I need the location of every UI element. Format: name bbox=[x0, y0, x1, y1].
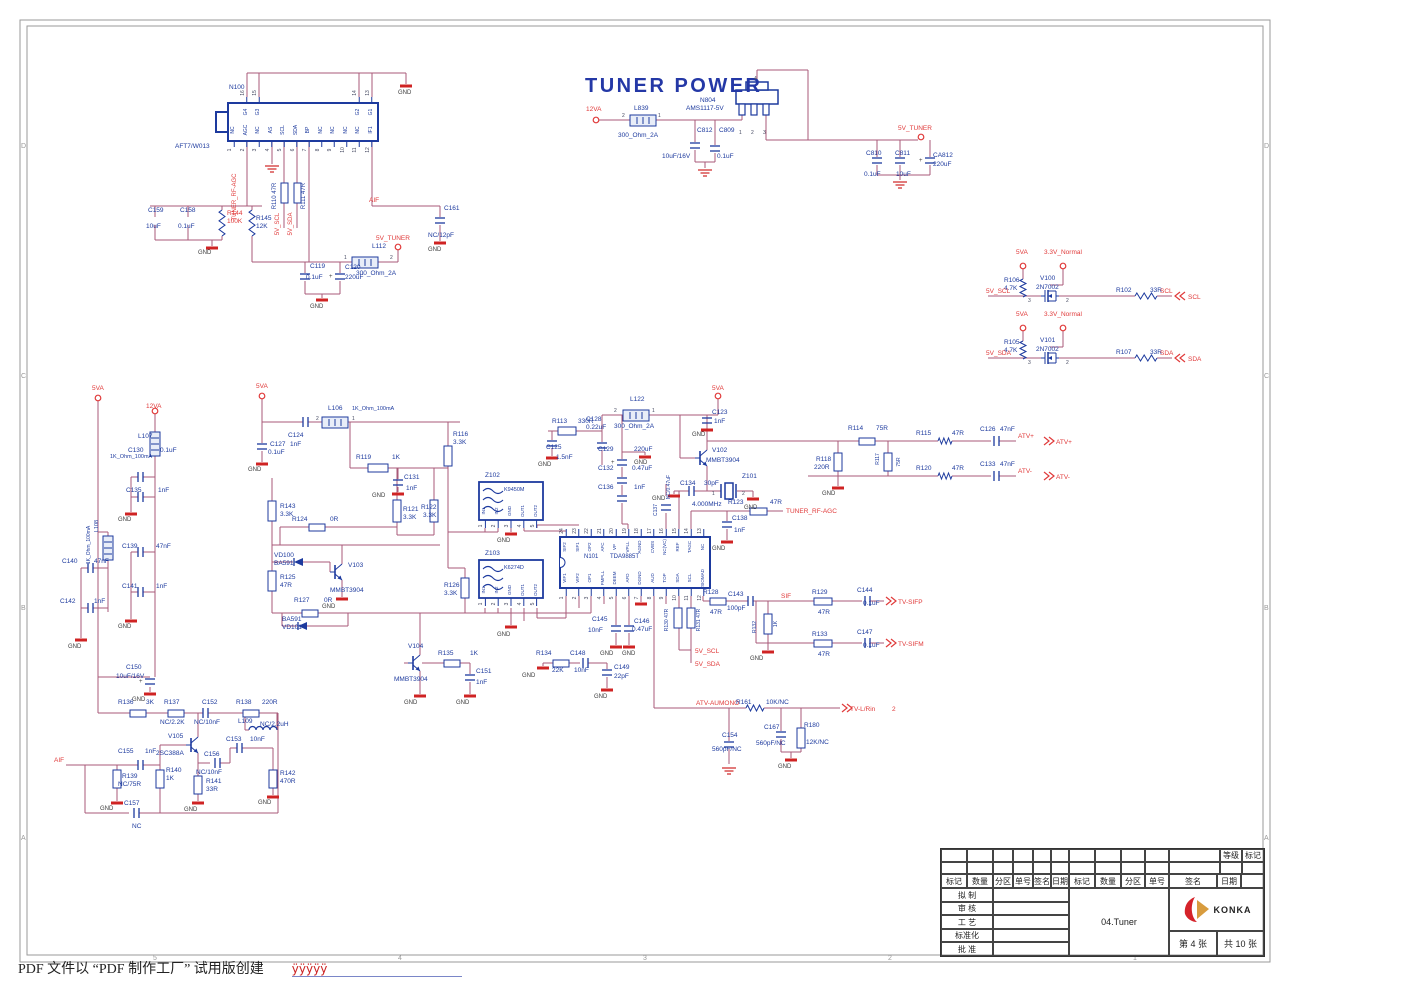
tb-header: 标记 bbox=[1069, 874, 1095, 888]
component-label: L122 bbox=[630, 396, 645, 403]
component-label: C159 bbox=[148, 207, 164, 214]
pin-number: 5 bbox=[277, 148, 283, 151]
component-label: 1K bbox=[166, 775, 175, 782]
earth-symbol bbox=[265, 166, 279, 172]
net-label: 100K bbox=[227, 218, 243, 225]
component-label: GND bbox=[507, 505, 512, 516]
net-label: ATV-AUMONO bbox=[696, 700, 739, 707]
power-terminal bbox=[1060, 263, 1066, 269]
resistor-symbol bbox=[553, 660, 569, 667]
component-label: 47nF bbox=[156, 543, 171, 550]
tb-cell bbox=[993, 902, 1069, 915]
tb-cell bbox=[941, 862, 967, 874]
tb-cell bbox=[1242, 862, 1264, 874]
component-label: C132 bbox=[598, 465, 614, 472]
component-label: 0.1uF bbox=[863, 600, 880, 607]
component-label: REF bbox=[675, 542, 680, 551]
frame-zone-label: 2 bbox=[888, 955, 892, 962]
component-label: Z102 bbox=[485, 472, 500, 479]
component-label: L112 bbox=[372, 243, 386, 250]
component-label: R120 bbox=[916, 465, 932, 472]
tb-header: 日期 bbox=[1051, 874, 1069, 888]
component-label: C154 bbox=[722, 732, 738, 739]
resistor-symbol bbox=[558, 427, 576, 435]
pin-number: 1 bbox=[559, 596, 565, 599]
svg-text:+: + bbox=[329, 274, 333, 280]
component-label: R139 bbox=[122, 773, 138, 780]
component-label: C158 bbox=[180, 207, 196, 214]
component-label: R118 bbox=[816, 456, 831, 463]
pin-number: 16 bbox=[240, 90, 246, 96]
pin-number: 5 bbox=[609, 596, 615, 599]
component-label: 1K_Ohm_100mA bbox=[352, 406, 395, 412]
gnd-label: GND bbox=[652, 496, 666, 502]
resistor-symbol bbox=[294, 183, 301, 203]
ic-symbol bbox=[560, 529, 710, 596]
component-label: 75R bbox=[876, 425, 888, 432]
component-label: 1K bbox=[470, 650, 479, 657]
component-label: R119 bbox=[356, 454, 371, 461]
component-label: R105 bbox=[1004, 339, 1020, 346]
net-label: TUNER_RF-AGC bbox=[786, 508, 837, 515]
component-label: L108 bbox=[94, 520, 100, 532]
component-label: V105 bbox=[168, 733, 184, 740]
component-label: R116 bbox=[453, 431, 468, 438]
pin-number: 21 bbox=[597, 528, 603, 534]
component-label: R145 bbox=[256, 215, 272, 222]
component-label: 2SC388A bbox=[156, 750, 184, 757]
resistor-symbol bbox=[243, 710, 259, 717]
resistor-symbol bbox=[130, 710, 146, 717]
pin-number: 20 bbox=[609, 528, 615, 534]
component-label: C157 bbox=[124, 800, 140, 807]
gnd-label: GND bbox=[744, 505, 758, 511]
capacitor-symbol bbox=[690, 143, 700, 148]
component-label: IN1 bbox=[481, 586, 486, 594]
component-label: 47R bbox=[818, 651, 830, 658]
pin-number: 2 bbox=[614, 408, 617, 414]
pin-number: 5 bbox=[530, 524, 536, 527]
component-label: 47R bbox=[952, 430, 964, 437]
component-label: C142 bbox=[60, 598, 76, 605]
resistor-symbol bbox=[461, 578, 469, 598]
component-label: 1K bbox=[392, 454, 401, 461]
component-label: 33R bbox=[206, 786, 218, 793]
component-label: R142 bbox=[280, 770, 296, 777]
component-label: C130 bbox=[128, 447, 144, 454]
tb-cell bbox=[1169, 849, 1220, 862]
pin-number: 8 bbox=[315, 148, 321, 151]
component-label: AS bbox=[268, 126, 274, 133]
component-label: VP bbox=[612, 544, 617, 550]
frame-zone-label: C bbox=[1264, 373, 1269, 380]
component-label: L109 bbox=[238, 718, 253, 725]
component-label: 0R bbox=[324, 597, 333, 604]
crystal-symbol bbox=[721, 483, 736, 499]
gnd-label: GND bbox=[750, 656, 764, 662]
component-label: 0.1uF bbox=[306, 274, 323, 281]
frame-zone-label: B bbox=[1264, 605, 1269, 612]
component-label: 0.1uF bbox=[268, 449, 285, 456]
pdf-watermark-footer: PDF 文件以 “PDF 制作工厂” 试用版创建ÿÿÿÿÿ bbox=[18, 958, 462, 978]
component-label: 1nF bbox=[476, 679, 487, 686]
component-label: SIOMAD bbox=[700, 568, 705, 587]
component-label: VD101 bbox=[282, 624, 302, 631]
component-label: R143 bbox=[280, 503, 296, 510]
connector-symbol bbox=[216, 97, 378, 147]
component-label: 1nF bbox=[158, 487, 169, 494]
component-label: R121 bbox=[403, 506, 419, 513]
component-label: NC/75R bbox=[118, 781, 141, 788]
pin-number: 18 bbox=[634, 528, 640, 534]
component-label: G3 bbox=[255, 108, 261, 115]
power-terminal bbox=[395, 244, 401, 250]
resistor-symbol bbox=[834, 453, 842, 471]
component-label: Z103 bbox=[485, 550, 500, 557]
component-label: AGC bbox=[243, 124, 249, 135]
capacitor-symbol bbox=[203, 708, 208, 718]
component-label: 12K/NC bbox=[806, 739, 829, 746]
component-label: 47nF bbox=[94, 558, 109, 565]
pin-number: 19 bbox=[622, 528, 628, 534]
component-label: NC/10nF bbox=[196, 769, 222, 776]
component-label: NC bbox=[132, 823, 142, 830]
resistor-symbol bbox=[249, 210, 255, 236]
resistor-symbol bbox=[168, 710, 184, 717]
component-label: OP1 bbox=[587, 573, 592, 583]
net-label: 12VA bbox=[146, 403, 162, 410]
component-label: R102 bbox=[1116, 287, 1132, 294]
pin-number: 10 bbox=[672, 595, 678, 601]
component-label: 1nF bbox=[290, 441, 301, 448]
net-port-arrow bbox=[1175, 354, 1185, 362]
component-label: 22K bbox=[552, 667, 564, 674]
earth-symbol bbox=[722, 768, 736, 774]
net-port-arrow bbox=[886, 639, 896, 647]
capacitor-symbol bbox=[994, 471, 999, 481]
pin-number: 3 bbox=[763, 130, 766, 136]
pin-number: 24 bbox=[559, 528, 565, 534]
capacitor-symbol bbox=[872, 158, 882, 163]
power-terminal bbox=[1020, 325, 1026, 331]
component-label: 0.47uF bbox=[632, 465, 652, 472]
component-label: IN1 bbox=[481, 507, 486, 515]
component-label: C148 bbox=[570, 650, 586, 657]
component-label: R107 bbox=[1116, 349, 1132, 356]
component-label: 220uF bbox=[634, 446, 652, 453]
component-label: V102 bbox=[712, 447, 728, 454]
resistor-symbol bbox=[368, 464, 388, 472]
component-label: 12K bbox=[256, 223, 268, 230]
capacitor-symbol bbox=[602, 670, 612, 675]
tb-header: 签名 bbox=[1169, 874, 1217, 888]
component-label: OUT1 bbox=[520, 584, 525, 596]
gnd-label: GND bbox=[778, 764, 792, 770]
net-label: SDA bbox=[1160, 350, 1174, 357]
net-port-arrow bbox=[1175, 292, 1185, 300]
tb-cell bbox=[993, 929, 1069, 942]
component-label: 47R bbox=[770, 499, 782, 506]
resistor-symbol bbox=[268, 501, 276, 521]
capacitor-symbol bbox=[138, 587, 143, 597]
component-label: C131 bbox=[404, 474, 420, 481]
component-label: V101 bbox=[1040, 337, 1056, 344]
pin-number: 2 bbox=[1066, 298, 1069, 304]
pin-number: 3 bbox=[1028, 360, 1031, 366]
resistor-symbol bbox=[1020, 341, 1026, 359]
pin-number: 1 bbox=[652, 408, 655, 414]
net-label: 5VA bbox=[712, 385, 724, 392]
pin-number: 3 bbox=[584, 596, 590, 599]
brand-text: KONKA bbox=[1214, 905, 1252, 915]
resistor-symbol bbox=[281, 183, 288, 203]
pin-number: 4 bbox=[517, 602, 523, 605]
component-label: 300_Ohm_2A bbox=[356, 270, 397, 277]
tb-mark: 标记 bbox=[1242, 849, 1264, 862]
labels: N100AFT7/W01316151413G4G3G2G1NCAGCNCASSC… bbox=[21, 75, 1269, 962]
component-label: 10uF bbox=[146, 223, 161, 230]
component-label: C133 bbox=[980, 461, 996, 468]
net-label: 5V_TUNER bbox=[376, 235, 410, 242]
crystal-symbols bbox=[721, 483, 736, 499]
component-label: G2 bbox=[355, 108, 361, 115]
component-label: R125 bbox=[280, 574, 296, 581]
component-label: C138 bbox=[732, 515, 748, 522]
component-label: C136 bbox=[598, 484, 614, 491]
component-label: C144 bbox=[857, 587, 873, 594]
net-label: SDA bbox=[1188, 356, 1202, 363]
net-label: 5V_SCL bbox=[695, 648, 720, 655]
component-label: 47nF bbox=[1000, 461, 1015, 468]
component-label: C143 bbox=[728, 591, 744, 598]
component-label: CA812 bbox=[933, 152, 953, 159]
component-label: AFT7/W013 bbox=[175, 143, 210, 150]
capacitor-symbol: + bbox=[329, 274, 345, 280]
pin-number: 1 bbox=[478, 602, 484, 605]
component-label: 10uF bbox=[896, 171, 911, 178]
component-label: NC bbox=[255, 126, 261, 134]
tb-cell bbox=[1241, 874, 1264, 888]
capacitor-symbol bbox=[88, 603, 93, 613]
pin-number: 8 bbox=[647, 596, 653, 599]
component-label: R180 bbox=[804, 722, 820, 729]
component-label: VPLL bbox=[625, 541, 630, 553]
component-label: R126 bbox=[444, 582, 460, 589]
schematic-sheet: ++++N100AFT7/W01316151413G4G3G2G1NCAGCNC… bbox=[0, 0, 1404, 993]
component-label: C128 bbox=[586, 416, 602, 423]
power-terminal bbox=[918, 134, 924, 140]
pin-number: 7 bbox=[634, 596, 640, 599]
tb-header: 数量 bbox=[967, 874, 993, 888]
net-port-arrow bbox=[1044, 437, 1054, 445]
capacitor-symbol bbox=[776, 732, 786, 737]
component-label: 47R bbox=[952, 465, 964, 472]
component-label: 560pF/NC bbox=[712, 746, 742, 753]
pin-number: 14 bbox=[352, 90, 358, 96]
tb-cell bbox=[993, 888, 1069, 902]
gnd-label: GND bbox=[100, 806, 114, 812]
component-label: 1nF bbox=[634, 484, 645, 491]
component-label: C135 bbox=[126, 487, 142, 494]
component-label: NC(VC) bbox=[662, 539, 667, 555]
pin-number: 11 bbox=[684, 595, 690, 600]
component-label: OUT2 bbox=[533, 505, 538, 517]
tb-cell bbox=[993, 862, 1013, 874]
resistor-symbol bbox=[938, 438, 952, 444]
component-label: V103 bbox=[348, 562, 364, 569]
capacitor-symbol bbox=[134, 808, 139, 818]
component-label: BP bbox=[305, 126, 311, 133]
component-label: C134 bbox=[680, 480, 696, 487]
capacitor-symbol bbox=[465, 675, 475, 680]
sheet-frame bbox=[20, 20, 1270, 962]
tb-header: 签名 bbox=[1033, 874, 1051, 888]
capacitor-symbol bbox=[617, 496, 627, 501]
component-label: MMBT3904 bbox=[706, 457, 740, 464]
component-label: NC/12pF bbox=[428, 232, 454, 239]
component-label: R114 bbox=[848, 425, 863, 432]
tb-cell bbox=[1013, 862, 1033, 874]
gnd-label: GND bbox=[132, 697, 146, 703]
mosfet-symbol bbox=[1041, 290, 1059, 302]
capacitor-symbol bbox=[722, 522, 732, 527]
component-label: 100pF bbox=[727, 605, 745, 612]
component-label: 22pF bbox=[614, 673, 629, 680]
net-label: 5VA bbox=[92, 385, 104, 392]
component-label: R130 47R bbox=[664, 608, 670, 631]
tb-row-label: 批 准 bbox=[941, 942, 993, 956]
pin-number: 2 bbox=[622, 113, 625, 119]
component-label: NC/10nF bbox=[194, 719, 220, 726]
capacitor-symbol bbox=[710, 146, 720, 151]
earth-symbol bbox=[698, 170, 712, 176]
gnd-label: GND bbox=[456, 700, 470, 706]
resistor-symbol bbox=[309, 524, 325, 531]
component-label: 1.5nF bbox=[556, 454, 573, 461]
component-label: V100 bbox=[1040, 275, 1056, 282]
component-label: 47R bbox=[280, 582, 292, 589]
pin-number: 1 bbox=[352, 416, 355, 422]
component-label: 1K_Ohm_100mA bbox=[110, 454, 153, 460]
frame-zone-label: D bbox=[1264, 143, 1269, 150]
tb-cell bbox=[941, 849, 967, 862]
tb-cell bbox=[1013, 849, 1033, 862]
gnd-label: GND bbox=[322, 604, 336, 610]
resistor-symbol bbox=[194, 776, 202, 794]
component-label: N101 bbox=[584, 554, 599, 560]
gnd-label: GND bbox=[822, 491, 836, 497]
pin-number: 13 bbox=[365, 90, 371, 96]
component-label: R111 47R bbox=[301, 182, 307, 209]
component-label: C141 bbox=[122, 583, 138, 590]
pin-number: 2 bbox=[491, 524, 497, 527]
component-label: C146 bbox=[634, 618, 650, 625]
component-label: 1nF bbox=[406, 485, 417, 492]
component-label: 220R bbox=[814, 464, 830, 471]
component-label: 10nF bbox=[574, 667, 589, 674]
component-label: N100 bbox=[229, 84, 245, 91]
power-terminal bbox=[1020, 263, 1026, 269]
capacitor-symbol bbox=[138, 547, 143, 557]
capacitor-symbol bbox=[303, 417, 308, 427]
gnd-label: GND bbox=[522, 673, 536, 679]
pin-number: 3 bbox=[504, 602, 510, 605]
component-label: SDA bbox=[675, 573, 680, 582]
capacitor-symbol bbox=[617, 478, 627, 483]
component-label: CVBS bbox=[650, 541, 655, 553]
component-label: NC/2.2K bbox=[160, 719, 185, 726]
inductor-symbol bbox=[623, 410, 649, 421]
pin-number: 1 bbox=[658, 113, 661, 119]
tb-header: 分区 bbox=[1121, 874, 1145, 888]
component-label: C810 bbox=[866, 150, 882, 157]
pin-number: 17 bbox=[647, 528, 653, 534]
component-label: R132 bbox=[752, 621, 758, 633]
pin-number: 2 bbox=[572, 596, 578, 599]
capacitor-symbol bbox=[215, 758, 220, 768]
resistor-symbol bbox=[710, 598, 726, 605]
component-label: BA591 bbox=[282, 616, 302, 623]
pin-number: 2 bbox=[390, 255, 393, 261]
component-label: DGND bbox=[637, 571, 642, 585]
component-label: 1nF bbox=[156, 583, 167, 590]
tb-cell bbox=[993, 915, 1069, 929]
pin-number: 7 bbox=[302, 148, 308, 151]
gnd-label: GND bbox=[497, 538, 511, 544]
frame-zone-label: 3 bbox=[643, 955, 647, 962]
pin-number: 1 bbox=[712, 491, 715, 497]
resistor-symbol bbox=[764, 614, 772, 634]
component-label: 1nF bbox=[145, 748, 156, 755]
pin-number: 1 bbox=[344, 255, 347, 261]
net-label: TV-L/Rin bbox=[850, 706, 876, 713]
component-label: 2N7002 bbox=[1036, 284, 1059, 291]
resistor-symbol bbox=[1020, 279, 1026, 297]
capacitor-symbol bbox=[994, 436, 999, 446]
tb-cell bbox=[993, 942, 1069, 956]
inductor-symbol bbox=[630, 115, 656, 126]
gnd-label: GND bbox=[404, 700, 418, 706]
component-label: 470R bbox=[280, 778, 296, 785]
resistor-symbol bbox=[269, 770, 277, 788]
component-label: C125 bbox=[546, 444, 562, 451]
component-label: R138 bbox=[236, 699, 252, 706]
net-label: ATV+ bbox=[1018, 433, 1034, 440]
pin-number: 6 bbox=[622, 596, 628, 599]
power-terminal bbox=[259, 393, 265, 399]
capacitor-symbol bbox=[661, 505, 671, 510]
mosfet-symbol bbox=[1041, 352, 1059, 364]
frame-zone-label: C bbox=[21, 373, 26, 380]
frame-zone-label: B bbox=[21, 605, 26, 612]
pin-number: 3 bbox=[252, 148, 258, 151]
component-label: 1nF bbox=[94, 598, 105, 605]
power-terminal bbox=[1060, 325, 1066, 331]
component-label: L839 bbox=[634, 105, 649, 112]
gnd-label: GND bbox=[248, 467, 262, 473]
capacitor-symbol bbox=[895, 158, 905, 163]
component-label: 0.1uF bbox=[863, 642, 880, 649]
component-label: R115 bbox=[916, 430, 931, 437]
resistor-symbol bbox=[814, 640, 832, 647]
component-label: C155 bbox=[118, 748, 134, 755]
resistor-symbol bbox=[444, 446, 452, 466]
tb-header: 日期 bbox=[1217, 874, 1241, 888]
capacitor-symbol bbox=[748, 596, 753, 606]
component-label: 300_Ohm_2A bbox=[614, 423, 655, 430]
capacitor-symbol bbox=[138, 472, 143, 482]
tb-row-label: 审 核 bbox=[941, 902, 993, 915]
